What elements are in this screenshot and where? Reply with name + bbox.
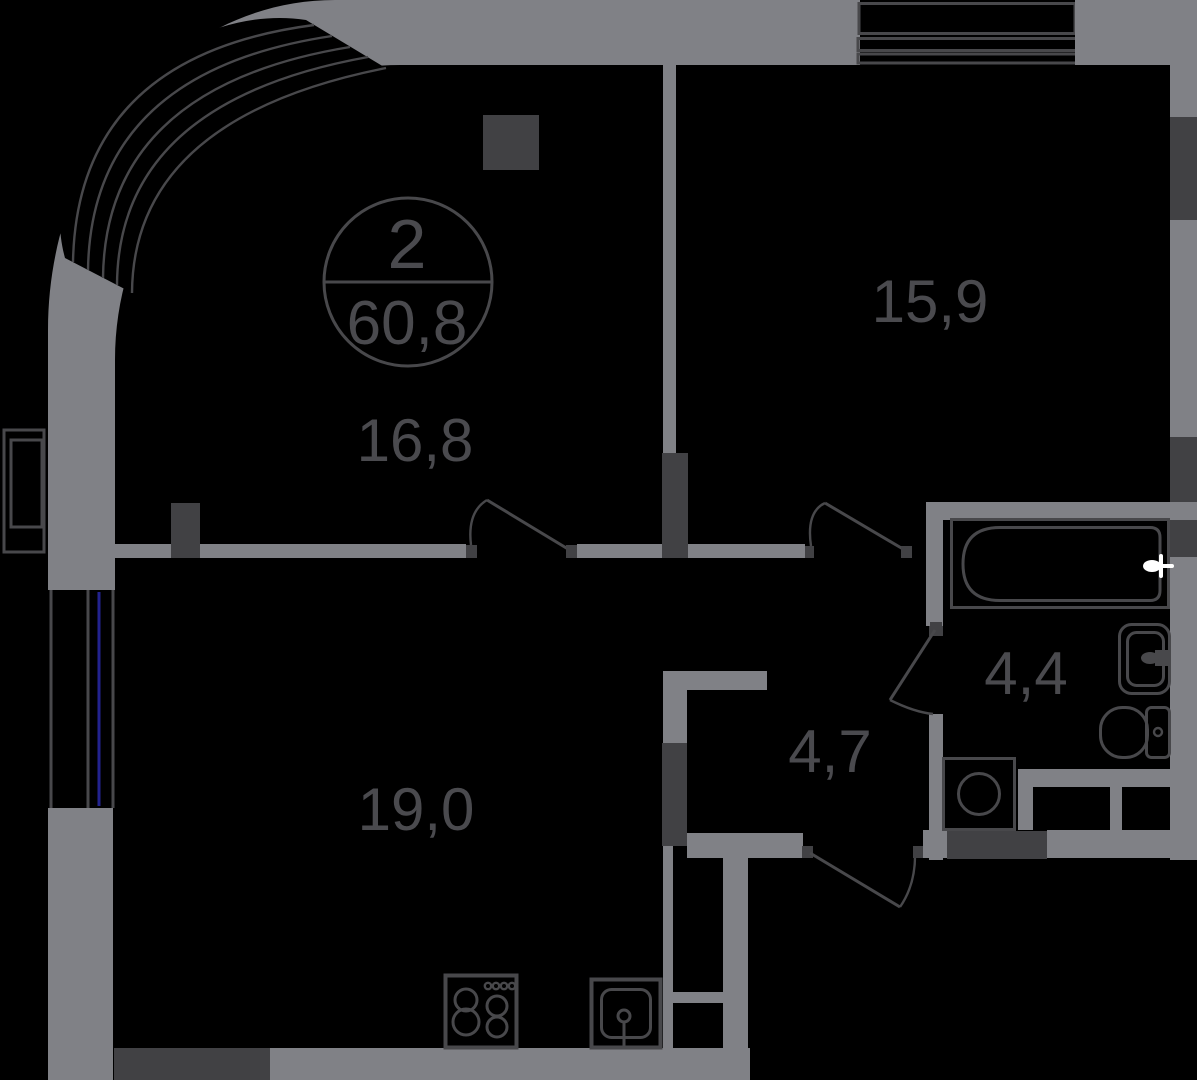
floor-plan-canvas: 2 60,8 15,9 16,8 19,0 4,4 4,7 (0, 0, 1197, 1080)
kitchen-sink-bowl (602, 990, 651, 1038)
door-leaf (825, 503, 903, 549)
room-label-15-9: 15,9 (872, 268, 989, 335)
entrance-wall-right (1047, 830, 1197, 858)
outer-wall-top-right-corner (1075, 0, 1197, 65)
hallway-left-wall-dark (662, 743, 687, 846)
interior-walls (113, 65, 1197, 1048)
closet-strip-left (663, 846, 673, 1048)
outer-walls (48, 0, 1197, 1080)
door-leaf (890, 630, 935, 700)
outer-wall-bottom-dark (114, 1048, 270, 1080)
stamp-total-area: 60,8 (347, 289, 468, 358)
toilet-flush-button (1154, 728, 1162, 736)
left-window (51, 590, 113, 808)
closet-connector (663, 992, 723, 1003)
stove-burner (487, 1017, 507, 1037)
wall-horizontal-segment (200, 544, 466, 558)
door-hinge-block (566, 545, 577, 558)
door-swing-arc (890, 700, 933, 714)
door-leaf (810, 853, 900, 907)
stove-burner (453, 1009, 479, 1035)
kitchen-hall-wall (723, 833, 748, 1048)
entrance-wall-left (687, 833, 803, 858)
stove-knob (509, 983, 515, 989)
stove-knob (501, 983, 507, 989)
bathtub-outline (952, 520, 1169, 608)
washing-machine-icon (944, 759, 1015, 830)
radiator-inner (11, 440, 42, 527)
washing-machine-drum (959, 774, 1000, 815)
duct-right-strip (1173, 787, 1197, 830)
duct-top-band (1018, 769, 1197, 787)
door-hinge-block (805, 546, 814, 558)
room-label-4-7: 4,7 (788, 718, 871, 785)
wall-horizontal-segment (113, 544, 171, 558)
door-room-15-9 (805, 503, 912, 558)
kitchen-sink-faucet-head (618, 1010, 630, 1022)
room-label-16-8: 16,8 (357, 407, 474, 474)
balcony-glazing-bar (858, 54, 1078, 63)
washbasin-faucet-spout (1141, 652, 1159, 664)
stamp-rooms-count: 2 (388, 205, 427, 283)
outer-wall-right-dark-middle (1170, 437, 1197, 557)
duct-left-strip (1018, 787, 1033, 830)
door-hinge-block (930, 622, 942, 631)
wall-horizontal-segment (577, 544, 662, 558)
door-entrance (802, 846, 923, 907)
door-swing-arc (900, 851, 915, 907)
stove-knob (485, 983, 491, 989)
door-swing-arc (810, 503, 825, 546)
door-hinge-block (802, 846, 813, 858)
duct-mid-strip (1110, 787, 1122, 830)
bathroom-top-wall (926, 502, 1197, 520)
hallway-top-wall (663, 671, 767, 690)
toilet-tank (1147, 708, 1170, 758)
wall-dark-block-left (171, 503, 200, 558)
wall-room-divider-vertical (663, 65, 676, 455)
kitchen-sink-icon (592, 980, 661, 1048)
bathroom-left-wall-upper (926, 502, 943, 626)
door-room-16-8 (466, 500, 577, 558)
washbasin-icon (1120, 625, 1170, 694)
wall-horizontal-segment (688, 544, 805, 558)
door-leaf (487, 500, 568, 549)
bathroom-corner-bump (924, 831, 947, 858)
door-hinge-block (913, 846, 923, 858)
door-hinge-block (466, 545, 477, 558)
radiator-icon (4, 430, 44, 552)
area-stamp: 2 60,8 (324, 198, 492, 366)
door-swing-arc (470, 500, 487, 545)
stove-knob (493, 983, 499, 989)
toilet-bowl (1101, 708, 1148, 758)
door-hinge-block (901, 546, 912, 558)
washing-machine-body (944, 759, 1015, 830)
room-label-19-0: 19,0 (358, 776, 475, 843)
balcony-glazing (858, 4, 1078, 64)
bathtub-icon (952, 520, 1173, 608)
room-label-4-4: 4,4 (984, 640, 1067, 707)
toilet-icon (1101, 708, 1170, 758)
balcony-glazing-bar (858, 39, 1078, 51)
balcony-glazing-bar (859, 4, 1075, 34)
entrance-wall-dark (947, 831, 1047, 859)
bathtub-inner (963, 528, 1160, 601)
kitchen-fixtures (446, 976, 661, 1048)
stove-icon (446, 976, 517, 1048)
outer-wall-bottom (270, 1048, 750, 1080)
outer-wall-right-dark-upper (1170, 117, 1197, 220)
stove-burner (487, 996, 507, 1016)
outer-wall-left-lower (48, 808, 113, 1080)
wall-room-divider-dark-block (662, 453, 688, 558)
column-block (483, 115, 539, 170)
curved-window-opening (60, 18, 394, 297)
hallway-left-wall (663, 690, 687, 745)
floor-plan: 2 60,8 15,9 16,8 19,0 4,4 4,7 (0, 0, 1197, 1080)
